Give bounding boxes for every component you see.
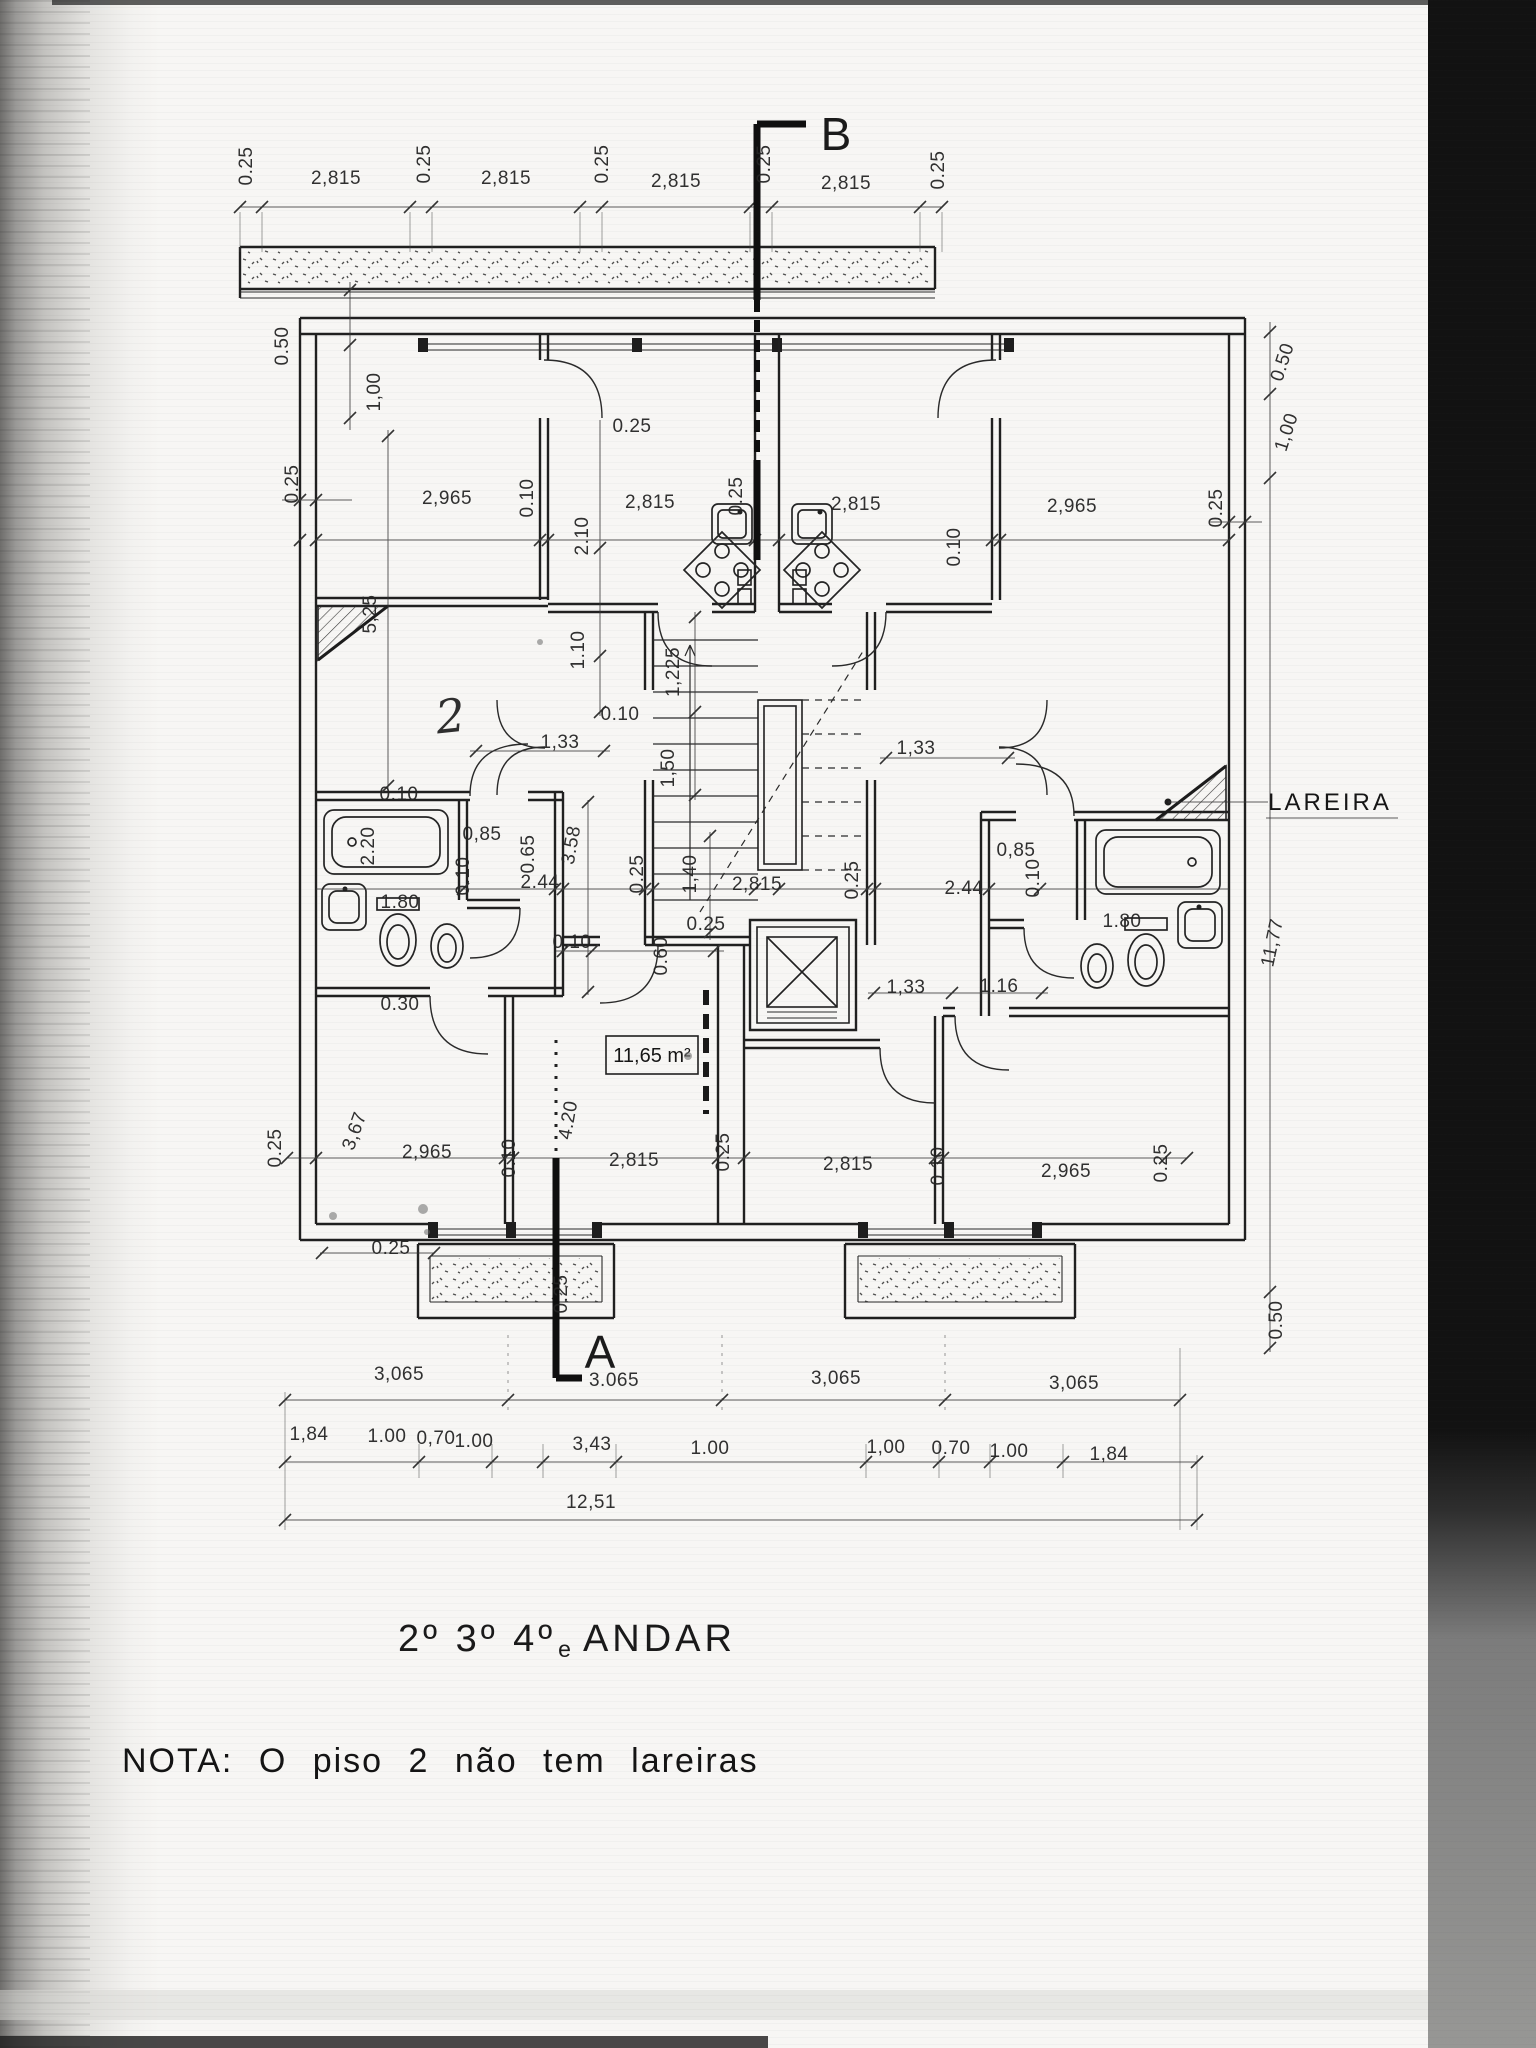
dim-label: 0.30 [381,994,420,1015]
dim-label: 0,85 [997,840,1036,861]
dim-label: 0.50 [272,327,293,366]
dim-label: 0.10 [517,479,538,518]
elevator-shaft [750,920,856,1030]
dim-label: 1,33 [887,977,926,998]
dim-label: 1.00 [368,1426,407,1447]
dim-label: 4.20 [555,1099,582,1141]
dim-label: 0.25 [726,477,747,516]
drawing-note: NOTA: O piso 2 não tem lareiras [122,1742,759,1781]
dim-label: 0.10 [1023,859,1044,898]
dim-label: 1.80 [1103,911,1142,932]
bottom-balconies [418,1244,1075,1318]
dim-label: 0.25 [592,145,613,184]
title-word: ANDAR [583,1618,736,1660]
dim-label: 2,815 [831,494,881,515]
dim-label: 0.60 [651,937,672,976]
dim-label: 0.10 [601,704,640,725]
dim-label: 1,50 [658,749,679,788]
title-floors: 2º 3º 4º [398,1618,556,1660]
dim-label: 0.25 [627,855,648,894]
dim-label: 0.70 [932,1438,971,1459]
dim-label: 0.25 [265,1129,286,1168]
dim-label: 1.00 [990,1441,1029,1462]
dim-label: 1,225 [663,647,684,697]
dim-label: 1,84 [290,1424,329,1445]
dim-label: 0.25 [551,1275,572,1314]
dim-label: 0,70 [417,1428,456,1449]
door-arcs [430,360,1074,1103]
dim-label: 2.44 [945,878,984,899]
dim-label: 1.00 [691,1438,730,1459]
outer-walls [300,318,1245,1240]
dim-label: 1,00 [867,1437,906,1458]
dim-label: 1.16 [980,976,1019,997]
dim-label: 1,40 [680,855,701,894]
dim-label: 0.25 [236,147,257,186]
dim-label: 0.50 [1266,1301,1287,1340]
dim-label: 0.25 [613,416,652,437]
fireplace-right [1156,766,1226,820]
dim-label: 1,00 [1271,411,1303,455]
dim-label: 2.10 [572,517,593,556]
drawing-title: 2º 3º 4ºeANDAR [398,1618,736,1663]
dim-label: 0.10 [944,528,965,567]
dim-label: 0.25 [687,914,726,935]
dim-label: 1.00 [455,1431,494,1452]
dim-label: 1,33 [541,732,580,753]
dim-label: 1,84 [1090,1444,1129,1465]
dim-label: 2,815 [609,1150,659,1171]
dim-label: 3,065 [374,1364,424,1385]
section-line-A: A [556,1040,616,1378]
dim-label: 3,065 [811,1368,861,1389]
dim-label: 2.20 [358,827,379,866]
fireplace-label: LAREIRA [1268,789,1392,816]
dim-label: 2,815 [823,1154,873,1175]
dim-label: 0.25 [282,465,303,504]
dim-label: 0.10 [380,784,419,805]
dim-label: 0.65 [518,835,539,874]
dim-label: 0.25 [1151,1144,1172,1183]
bathroom-right [1081,830,1222,988]
dim-label: 1.80 [381,892,420,913]
top-balcony [240,247,935,298]
dim-label: 2,815 [732,874,782,895]
dim-label: 0.25 [713,1133,734,1172]
dim-label: 12,51 [566,1492,616,1513]
dim-label: 2,815 [651,171,701,192]
dim-label: 0.10 [499,1139,520,1178]
room-area-label: 11,65 m² [613,1045,691,1067]
floorplan-scan: B A LAREIRA 11,65 m² 2 0.252,8150.252,81… [0,0,1536,2048]
dim-label: 5,25 [360,595,381,634]
dim-label: 0.50 [1267,341,1299,385]
dim-label: 3.065 [589,1370,639,1391]
dim-label: 0.25 [842,861,863,900]
dim-label: 2,965 [1047,496,1097,517]
dim-label: 2,815 [821,173,871,194]
dim-label: 3,67 [338,1109,371,1153]
title-suffix: e [558,1636,575,1662]
dim-label: 3,065 [1049,1373,1099,1394]
dim-label: 0,85 [463,824,502,845]
dim-label: 2,815 [311,168,361,189]
section-label-b: B [821,108,852,160]
dim-label: 0.25 [1206,489,1227,528]
dim-label: 2,965 [422,488,472,509]
dim-label: 0.25 [928,151,949,190]
dim-label: 0.25 [414,145,435,184]
window-jambs [418,338,1042,1238]
dim-label: 0.25 [372,1238,411,1259]
dim-label: 2,815 [481,168,531,189]
interior-walls [316,334,1229,1224]
dim-label: 2.44 [521,872,560,893]
dim-label: 11,77 [1257,917,1288,969]
dim-label: 0.10 [453,857,474,896]
dim-label: 0.10 [553,932,592,953]
dim-label: 3,43 [573,1434,612,1455]
kitchen-fixtures [684,504,860,608]
dim-label: 1,33 [897,738,936,759]
dim-label: 2,815 [625,492,675,513]
dim-label: 1,00 [364,373,385,412]
dim-label: 2,965 [1041,1161,1091,1182]
dim-label: 0.25 [754,145,775,184]
handwritten-mark: 2 [432,688,468,745]
dim-label: 1.10 [568,631,589,670]
dim-label: 2,965 [402,1142,452,1163]
dim-label: 0.10 [928,1147,949,1186]
